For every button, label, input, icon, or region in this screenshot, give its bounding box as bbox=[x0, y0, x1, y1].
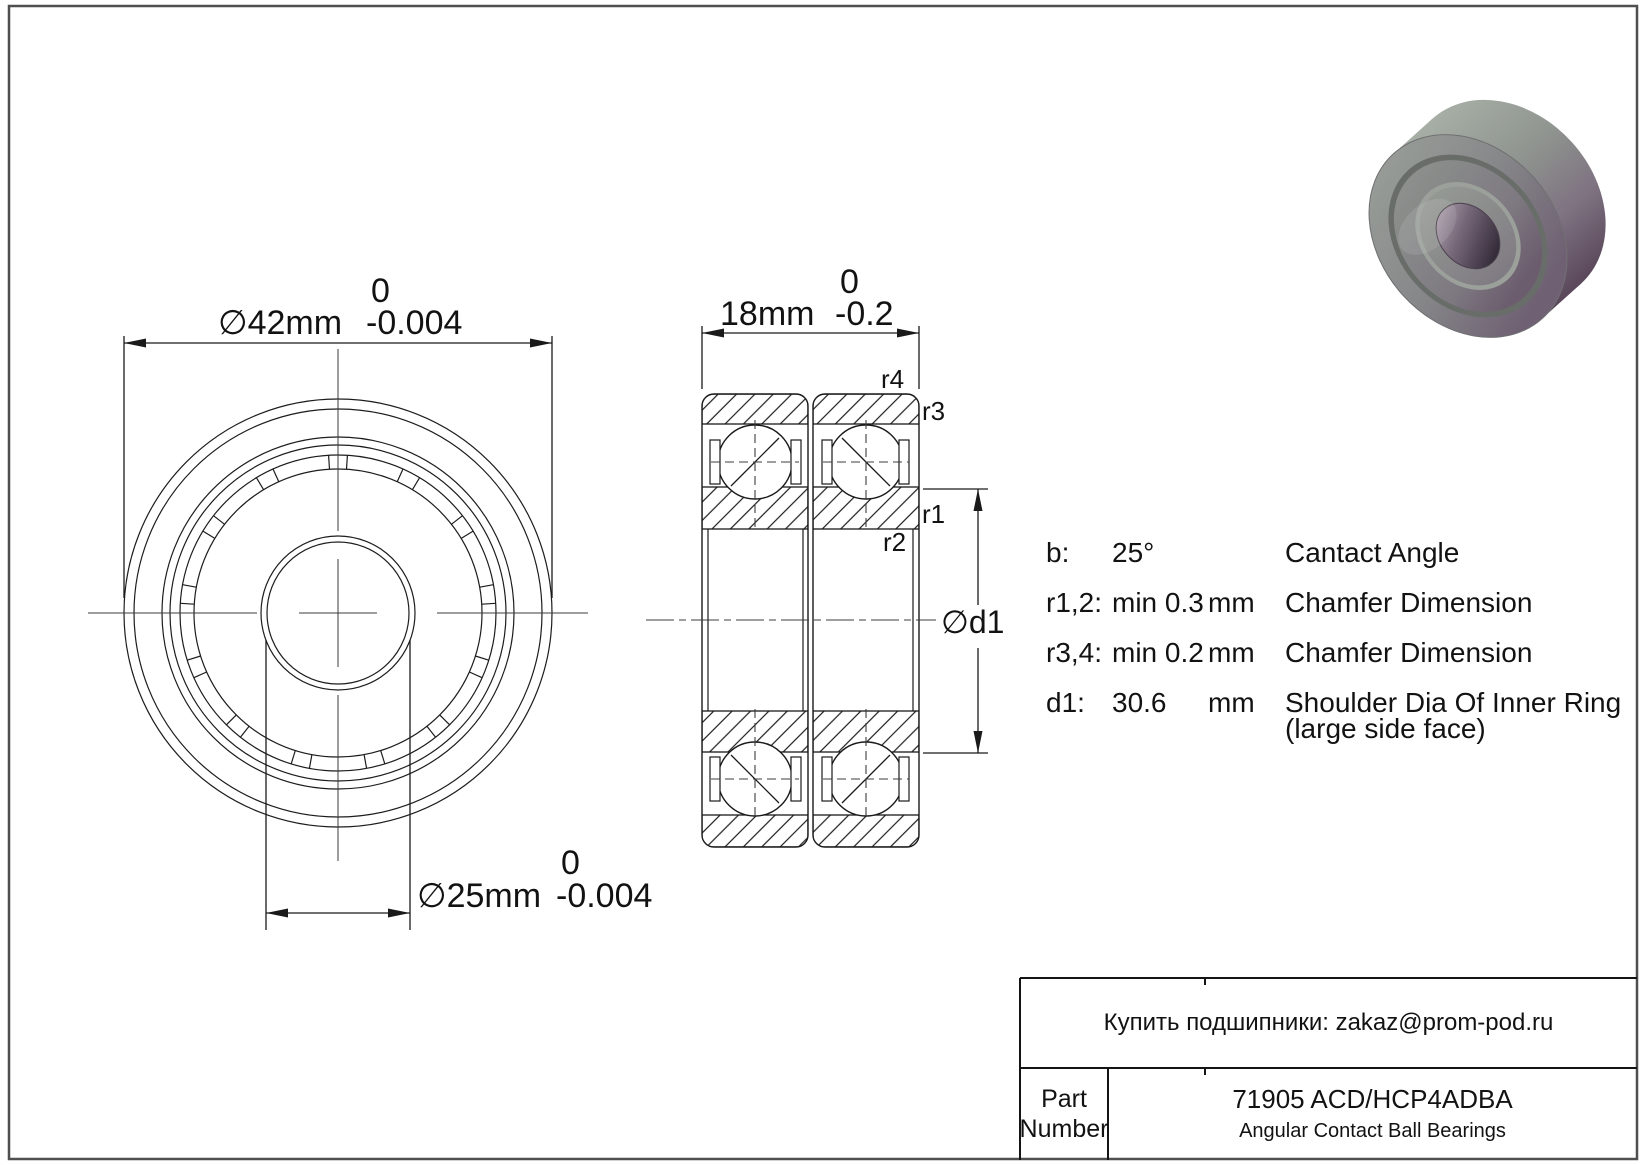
bore-dimension-value: ∅25mm bbox=[417, 877, 541, 915]
spec-unit: mm bbox=[1208, 637, 1285, 669]
chamfer-label-r4: r4 bbox=[881, 364, 904, 394]
width-dimension-value: 18mm bbox=[720, 295, 814, 333]
arrowhead-right bbox=[388, 909, 410, 918]
arrowhead-left bbox=[124, 339, 146, 348]
bearing-category: Angular Contact Ball Bearings bbox=[1239, 1118, 1506, 1144]
d1-dimension-label: ∅d1 bbox=[941, 604, 1004, 640]
bore-dimension-tol-upper: 0 bbox=[561, 844, 580, 882]
bearing-drawing-page: ∅42mm -0.004 0 ∅25mm -0.004 0 bbox=[0, 0, 1646, 1165]
spec-row-chamfer-r34: r3,4:min 0.2mmChamfer Dimension bbox=[1046, 637, 1641, 669]
spec-row-contact-angle: b:25°Cantact Angle bbox=[1046, 537, 1641, 569]
width-dimension-tol-upper: 0 bbox=[840, 263, 859, 301]
spec-label: d1: bbox=[1046, 687, 1112, 719]
arrowhead-left bbox=[266, 909, 288, 918]
arrowhead-right bbox=[897, 329, 919, 338]
od-dimension-tol-upper: 0 bbox=[371, 272, 390, 310]
spec-desc-line2: (large side face) bbox=[1285, 713, 1486, 745]
arrowhead-top bbox=[974, 489, 983, 511]
front-view bbox=[88, 349, 588, 861]
spec-desc: Chamfer Dimension bbox=[1285, 637, 1532, 668]
part-number: 71905 ACD/HCP4ADBA bbox=[1232, 1084, 1512, 1114]
front-view-centerlines bbox=[88, 349, 588, 861]
section-view: 18mm -0.2 0 ∅d1 r4 r3 r1 r2 bbox=[646, 263, 1004, 847]
contact-email-cell: Купить подшипники: zakaz@prom-pod.ru bbox=[1020, 978, 1637, 1068]
spec-desc: Cantact Angle bbox=[1285, 537, 1459, 568]
spec-value: 25° bbox=[1112, 537, 1208, 569]
bore-dimension: ∅25mm -0.004 0 bbox=[266, 640, 652, 930]
spec-label: r1,2: bbox=[1046, 587, 1112, 619]
spec-unit: mm bbox=[1208, 587, 1285, 619]
part-label-line1: Part bbox=[1041, 1084, 1087, 1114]
spec-label: r3,4: bbox=[1046, 637, 1112, 669]
part-number-value-cell: 71905 ACD/HCP4ADBA Angular Contact Ball … bbox=[1108, 1068, 1637, 1160]
spec-row-chamfer-r12: r1,2:min 0.3mmChamfer Dimension bbox=[1046, 587, 1641, 619]
spec-unit: mm bbox=[1208, 687, 1285, 719]
part-number-label-cell: Part Number bbox=[1020, 1068, 1108, 1160]
spec-label: b: bbox=[1046, 537, 1112, 569]
spec-value: min 0.2 bbox=[1112, 637, 1208, 669]
spec-desc: Chamfer Dimension bbox=[1285, 587, 1532, 618]
bearing-3d-render bbox=[1328, 60, 1646, 378]
part-label-line2: Number bbox=[1020, 1114, 1109, 1144]
bore-dimension-tol-lower: -0.004 bbox=[556, 877, 652, 915]
spec-value: min 0.3 bbox=[1112, 587, 1208, 619]
chamfer-label-r2: r2 bbox=[883, 527, 906, 557]
chamfer-label-r1: r1 bbox=[922, 499, 945, 529]
chamfer-label-r3: r3 bbox=[922, 396, 945, 426]
od-dimension-value: ∅42mm bbox=[218, 304, 342, 342]
arrowhead-bottom bbox=[974, 731, 983, 753]
spec-value: 30.6 bbox=[1112, 687, 1208, 719]
arrowhead-right bbox=[530, 339, 552, 348]
